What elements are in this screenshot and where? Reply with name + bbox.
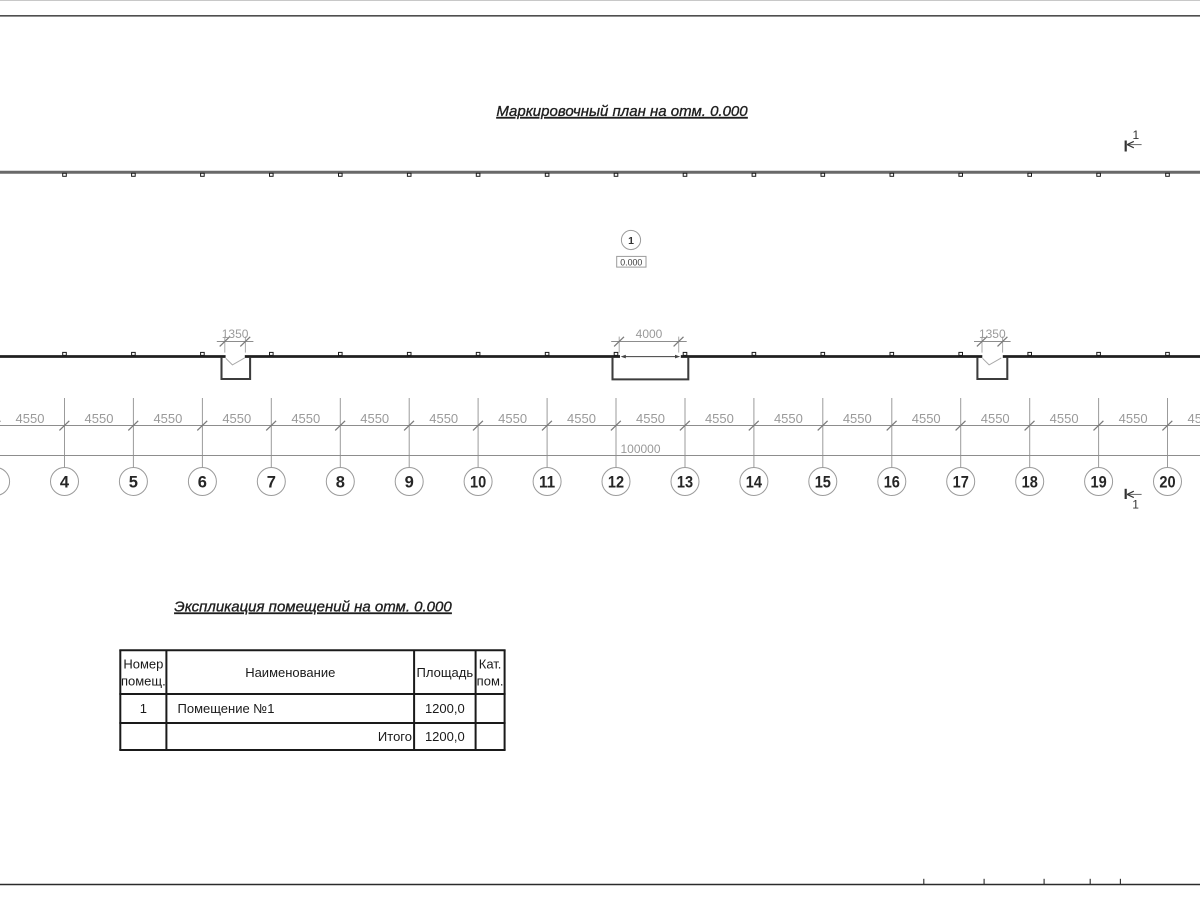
svg-text:4550: 4550 — [153, 411, 182, 426]
svg-text:4550: 4550 — [567, 411, 596, 426]
svg-text:8: 8 — [336, 474, 345, 492]
svg-text:4550: 4550 — [85, 411, 114, 426]
svg-text:4550: 4550 — [16, 411, 45, 426]
svg-text:4550: 4550 — [1050, 411, 1079, 426]
svg-text:4550: 4550 — [981, 411, 1010, 426]
svg-text:19: 19 — [1091, 474, 1107, 492]
svg-text:5: 5 — [129, 474, 138, 492]
svg-text:4550: 4550 — [360, 411, 389, 426]
svg-text:Помещение №1: Помещение №1 — [178, 701, 275, 716]
svg-text:Экспликация помещений на отм.: Экспликация помещений на отм. 0.000 — [174, 599, 452, 616]
svg-text:4: 4 — [60, 474, 70, 492]
svg-text:Наименование: Наименование — [245, 665, 335, 680]
svg-text:1: 1 — [140, 701, 147, 716]
svg-text:4550: 4550 — [291, 411, 320, 426]
svg-text:1350: 1350 — [979, 327, 1006, 341]
svg-text:9: 9 — [405, 474, 414, 492]
svg-text:16: 16 — [884, 474, 900, 492]
svg-text:14: 14 — [746, 474, 763, 492]
svg-text:6: 6 — [198, 474, 207, 492]
svg-text:Итого: Итого — [378, 729, 412, 744]
svg-text:1200,0: 1200,0 — [425, 729, 465, 744]
svg-text:4550: 4550 — [774, 411, 803, 426]
svg-text:13: 13 — [677, 474, 693, 492]
svg-text:Площадь: Площадь — [417, 665, 474, 680]
svg-text:Номер: Номер — [123, 657, 163, 672]
svg-text:10: 10 — [470, 474, 486, 492]
svg-text:4550: 4550 — [705, 411, 734, 426]
svg-text:1: 1 — [628, 235, 634, 247]
svg-text:пом.: пом. — [477, 674, 504, 689]
svg-text:4550: 4550 — [912, 411, 941, 426]
svg-text:4000: 4000 — [636, 327, 663, 341]
svg-text:4550: 4550 — [222, 411, 251, 426]
svg-text:100000: 100000 — [620, 442, 660, 456]
svg-text:Кат.: Кат. — [479, 657, 502, 672]
svg-text:1: 1 — [1132, 128, 1139, 142]
svg-text:4550: 4550 — [429, 411, 458, 426]
svg-text:4550: 4550 — [1119, 411, 1148, 426]
svg-text:4550: 4550 — [1188, 411, 1200, 426]
svg-text:15: 15 — [815, 474, 831, 492]
svg-text:4550: 4550 — [636, 411, 665, 426]
svg-text:12: 12 — [608, 474, 624, 492]
svg-text:Маркировочный план на отм. 0.0: Маркировочный план на отм. 0.000 — [496, 103, 748, 120]
svg-text:7: 7 — [267, 474, 276, 492]
svg-text:помещ.: помещ. — [121, 674, 166, 689]
svg-text:11: 11 — [539, 474, 555, 492]
svg-text:4550: 4550 — [843, 411, 872, 426]
svg-text:1350: 1350 — [222, 327, 249, 341]
svg-text:4550: 4550 — [498, 411, 527, 426]
svg-text:1: 1 — [1132, 498, 1139, 512]
svg-text:18: 18 — [1022, 474, 1038, 492]
svg-text:17: 17 — [953, 474, 969, 492]
svg-text:1200,0: 1200,0 — [425, 701, 465, 716]
svg-text:20: 20 — [1159, 474, 1175, 492]
svg-text:0.000: 0.000 — [620, 257, 642, 267]
